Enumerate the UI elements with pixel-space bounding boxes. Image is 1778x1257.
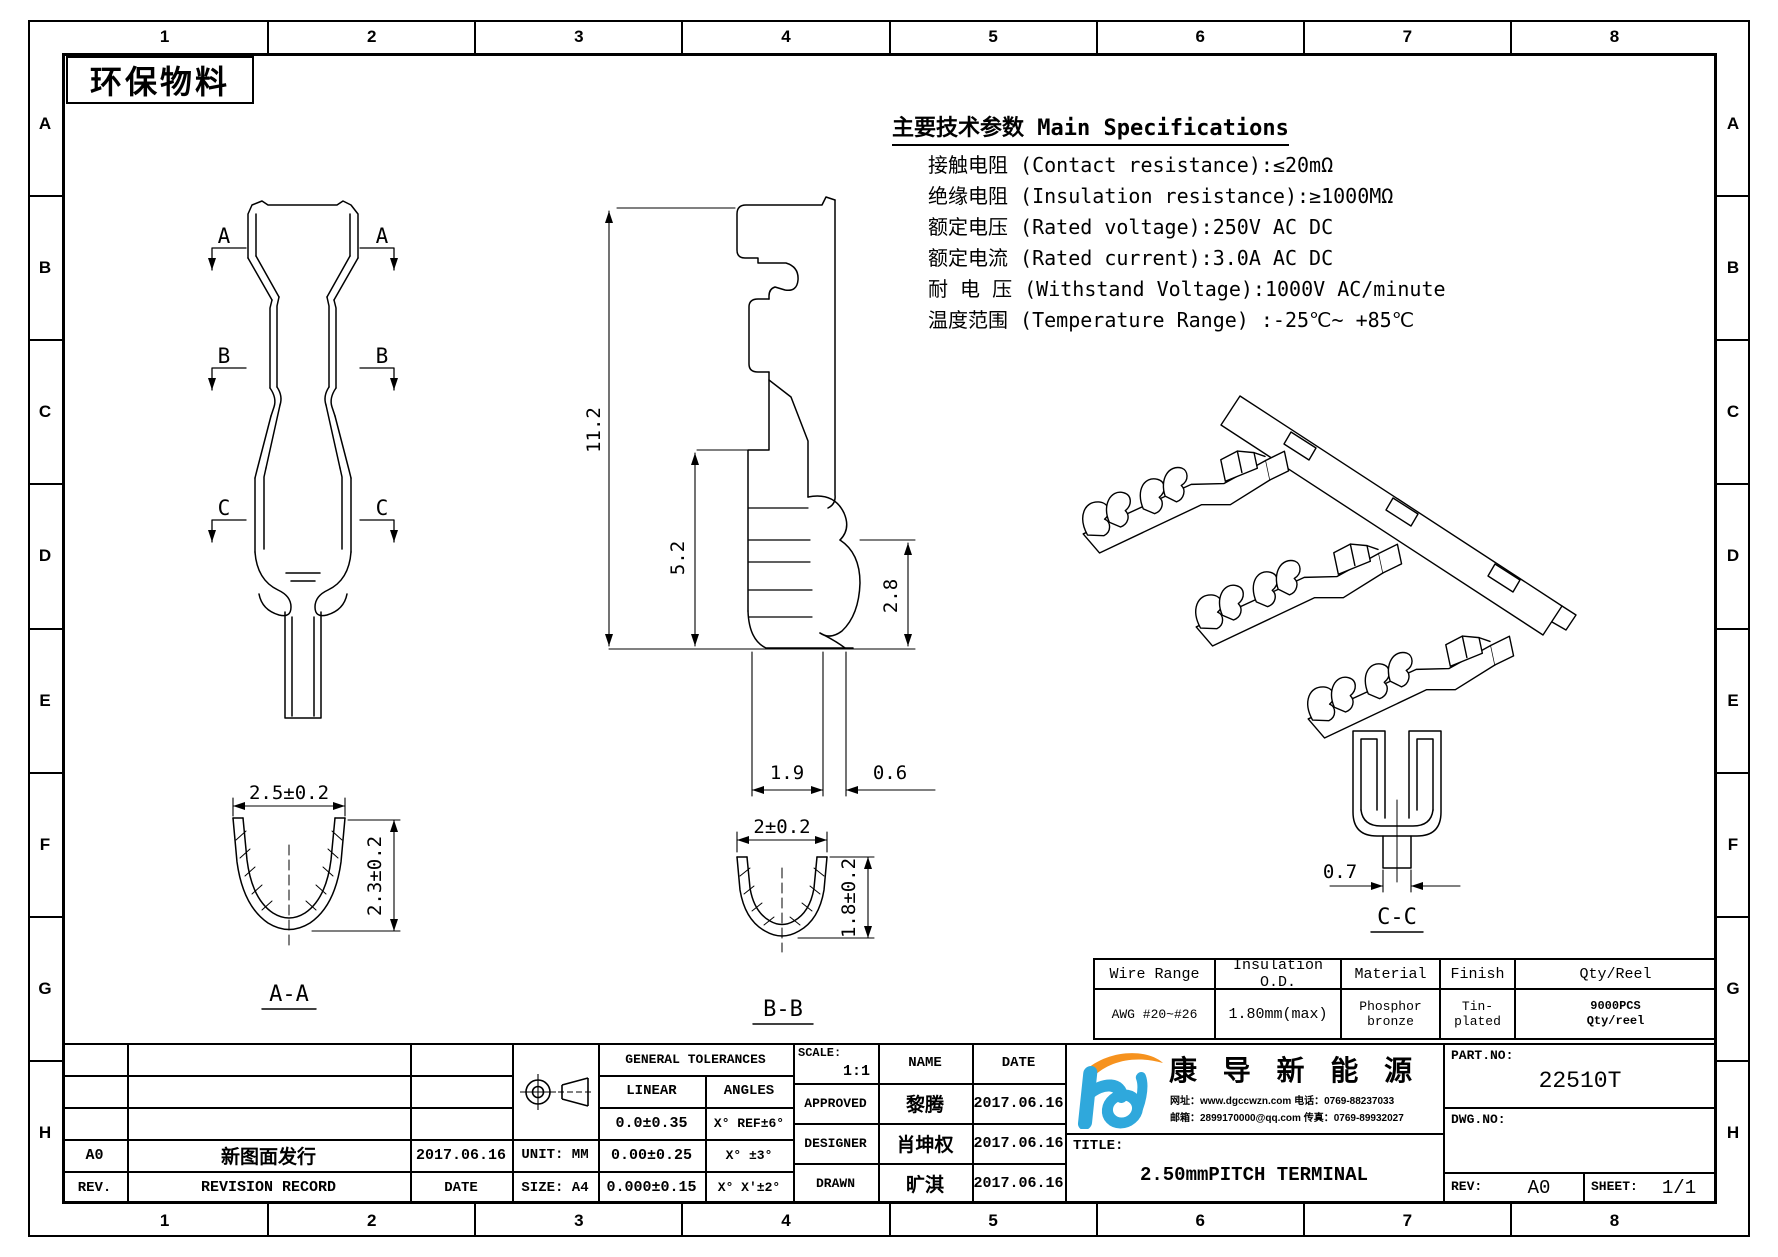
scale-value: 1:1 xyxy=(843,1063,870,1080)
dim-text-side-wing-height: 2.8 xyxy=(880,579,902,613)
part-no-value: 22510T xyxy=(1443,1058,1717,1104)
revision-description: 新图面发行 xyxy=(127,1139,410,1171)
wire-table-header-material: Material xyxy=(1340,960,1439,990)
section-letter-b-left: B xyxy=(218,344,231,368)
wire-table-value-wire-range: AWG #20~#26 xyxy=(1095,990,1214,1038)
isometric-view xyxy=(1073,396,1576,740)
zone-row-label: F xyxy=(28,772,62,916)
zone-column-label: 4 xyxy=(681,1204,888,1237)
zone-row-label: B xyxy=(1716,195,1750,339)
zone-row-label: H xyxy=(28,1060,62,1204)
view-label-cc: C-C xyxy=(1377,905,1417,930)
revision-rev-header: REV. xyxy=(62,1171,127,1204)
revision-date-header: DATE xyxy=(410,1171,512,1204)
dim-side-wing-height: 2.8 xyxy=(860,540,915,646)
section-letter-a-left: A xyxy=(218,224,231,248)
material-line1: Phosphor xyxy=(1359,999,1421,1014)
tolerance-angle-1: X° REF±6° xyxy=(705,1107,793,1139)
company-contact-line2: 邮箱：2899170000@qq.com 传真：0769-89932027 xyxy=(1170,1109,1440,1124)
signoff-date-drawn: 2017.06.16 xyxy=(972,1163,1065,1204)
signoff-role-designer: DESIGNER xyxy=(793,1123,878,1163)
dim-text-aa-height: 2.3±0.2 xyxy=(364,836,386,916)
wire-range-table: Wire Range Insulation O.D. Material Fini… xyxy=(1093,958,1717,1040)
view-label-aa: A-A xyxy=(269,982,309,1007)
dim-text-bb-height: 1.8±0.2 xyxy=(838,858,860,938)
wire-table-header-qty: Qty/Reel xyxy=(1514,960,1715,990)
revision-rev-value: A0 xyxy=(62,1139,127,1171)
zone-row-label: A xyxy=(28,53,62,195)
wire-table-header-wire-range: Wire Range xyxy=(1095,960,1214,990)
signoff-name-drawn: 旷淇 xyxy=(878,1163,972,1204)
iso-terminal-1 xyxy=(1073,442,1297,556)
zone-row-label: B xyxy=(28,195,62,339)
signoff-name-designer: 肖坤权 xyxy=(878,1123,972,1163)
zone-column-label: 7 xyxy=(1303,20,1510,53)
unit-label: UNIT: MM xyxy=(512,1139,598,1171)
side-view: 11.2 5.2 2.8 1.9 0.6 xyxy=(583,197,935,796)
signoff-role-drawn: DRAWN xyxy=(793,1163,878,1204)
dim-text-crimp-width: 1.9 xyxy=(770,762,804,784)
section-marker-c: C C xyxy=(212,496,394,542)
zone-row-label: E xyxy=(1716,628,1750,772)
tolerance-angle-2: X° ±3° xyxy=(705,1139,793,1171)
section-view-bb: 2±0.2 1.8±0.2 B-B xyxy=(737,816,874,1024)
finish-line1: Tin- xyxy=(1454,999,1501,1014)
wire-table-value-finish: Tin-plated xyxy=(1439,990,1514,1038)
signoff-date-designer: 2017.06.16 xyxy=(972,1123,1065,1163)
rev-value: A0 xyxy=(1495,1172,1583,1204)
material-line2: bronze xyxy=(1359,1014,1421,1029)
iso-terminal-2 xyxy=(1186,535,1410,649)
zone-column-label: 3 xyxy=(474,20,681,53)
company-logo-icon xyxy=(1073,1047,1165,1129)
company-block: 康 导 新 能 源 网址：www.dgccwzn.com 电话：0769-882… xyxy=(1065,1043,1443,1133)
sheet-label: SHEET: xyxy=(1591,1179,1638,1194)
section-letter-c-right: C xyxy=(376,496,389,520)
zone-row-label: C xyxy=(28,339,62,483)
dim-text-aa-width: 2.5±0.2 xyxy=(249,782,329,804)
tolerances-angles-header: ANGLES xyxy=(705,1075,793,1107)
dim-text-side-overall: 11.2 xyxy=(583,407,605,453)
iso-terminal-3 xyxy=(1298,627,1522,741)
name-header: NAME xyxy=(878,1043,972,1083)
drawing-title: 2.50mmPITCH TERMINAL xyxy=(1065,1152,1443,1198)
view-label-bb: B-B xyxy=(763,997,803,1022)
front-view: A A B B C C xyxy=(212,201,394,718)
zone-row-label: C xyxy=(1716,339,1750,483)
section-view-aa: 2.5±0.2 2.3±0.2 A-A xyxy=(233,782,400,1009)
qty-line2: Qty/reel xyxy=(1587,1014,1645,1029)
dim-side-overall: 11.2 xyxy=(583,208,915,649)
dim-aa-width: 2.5±0.2 xyxy=(233,782,345,816)
zone-column-label: 8 xyxy=(1510,1204,1717,1237)
zone-row-label: F xyxy=(1716,772,1750,916)
finish-line2: plated xyxy=(1454,1014,1501,1029)
signoff-date-approved: 2017.06.16 xyxy=(972,1083,1065,1123)
zone-band-bottom: 12345678 xyxy=(62,1204,1717,1237)
zone-row-label: H xyxy=(1716,1060,1750,1204)
zone-column-label: 7 xyxy=(1303,1204,1510,1237)
zone-band-top: 12345678 xyxy=(62,20,1717,53)
section-letter-b-right: B xyxy=(376,344,389,368)
tolerance-linear-2: 0.00±0.25 xyxy=(598,1139,705,1171)
zone-column-label: 1 xyxy=(62,1204,267,1237)
dim-aa-height: 2.3±0.2 xyxy=(312,820,400,931)
tolerance-linear-1: 0.0±0.35 xyxy=(598,1107,705,1139)
zone-column-label: 2 xyxy=(267,1204,474,1237)
wire-table-value-material: Phosphorbronze xyxy=(1340,990,1439,1038)
scale-label: SCALE: xyxy=(798,1046,841,1060)
drawing-sheet: 12345678 12345678 ABCDEFGH ABCDEFGH 环保物料… xyxy=(0,0,1778,1257)
section-view-cc: 0.7 C-C xyxy=(1323,731,1460,932)
dim-text-wing-thickness: 0.6 xyxy=(873,762,907,784)
zone-column-label: 8 xyxy=(1510,20,1717,53)
wire-table-header-finish: Finish xyxy=(1439,960,1514,990)
revision-record-header: REVISION RECORD xyxy=(127,1171,410,1204)
tolerance-linear-3: 0.000±0.15 xyxy=(598,1171,705,1204)
qty-line1: 9000PCS xyxy=(1587,999,1645,1014)
section-marker-a: A A xyxy=(212,224,394,270)
drawing-canvas: A A B B C C xyxy=(62,53,1717,1043)
signoff-role-approved: APPROVED xyxy=(793,1083,878,1123)
projection-symbol-icon xyxy=(516,1052,594,1132)
dim-text-side-crimp-height: 5.2 xyxy=(667,541,689,575)
dim-text-bb-width: 2±0.2 xyxy=(753,816,810,838)
zone-column-label: 6 xyxy=(1096,20,1303,53)
sheet-value: 1/1 xyxy=(1641,1172,1717,1204)
zone-column-label: 3 xyxy=(474,1204,681,1237)
dim-side-crimp-height: 5.2 xyxy=(667,450,748,646)
zone-band-left: ABCDEFGH xyxy=(28,53,62,1204)
dim-text-cc-width: 0.7 xyxy=(1323,861,1357,883)
company-contact-line1: 网址：www.dgccwzn.com 电话：0769-88237033 xyxy=(1170,1092,1440,1107)
zone-row-label: D xyxy=(1716,483,1750,627)
wire-table-header-insulation: Insulation O.D. xyxy=(1214,960,1340,990)
section-letter-a-right: A xyxy=(376,224,389,248)
zone-column-label: 5 xyxy=(889,20,1096,53)
zone-band-right: ABCDEFGH xyxy=(1716,53,1750,1204)
zone-row-label: G xyxy=(28,916,62,1060)
wire-table-value-qty: 9000PCSQty/reel xyxy=(1514,990,1715,1038)
date-header: DATE xyxy=(972,1043,1065,1083)
tolerances-linear-header: LINEAR xyxy=(598,1075,705,1107)
company-name: 康 导 新 能 源 xyxy=(1169,1049,1437,1089)
zone-row-label: G xyxy=(1716,916,1750,1060)
tolerances-title: GENERAL TOLERANCES xyxy=(598,1043,793,1075)
dwg-no-label: DWG.NO: xyxy=(1451,1112,1506,1127)
signoff-name-approved: 黎腾 xyxy=(878,1083,972,1123)
section-letter-c-left: C xyxy=(218,496,231,520)
dim-bb-width: 2±0.2 xyxy=(737,816,827,852)
zone-column-label: 2 xyxy=(267,20,474,53)
dim-cc-width: 0.7 xyxy=(1323,861,1460,892)
zone-column-label: 6 xyxy=(1096,1204,1303,1237)
zone-row-label: E xyxy=(28,628,62,772)
zone-column-label: 5 xyxy=(889,1204,1096,1237)
tolerance-angle-3: X° X'±2° xyxy=(705,1171,793,1204)
scale-cell: SCALE: 1:1 xyxy=(793,1043,878,1083)
dim-side-bottom: 1.9 0.6 xyxy=(752,652,935,796)
revision-date-value: 2017.06.16 xyxy=(410,1139,512,1171)
wire-table-value-insulation: 1.80mm(max) xyxy=(1214,990,1340,1038)
zone-column-label: 1 xyxy=(62,20,267,53)
zone-row-label: D xyxy=(28,483,62,627)
rev-label: REV: xyxy=(1451,1179,1482,1194)
size-label: SIZE: A4 xyxy=(512,1171,598,1204)
zone-row-label: A xyxy=(1716,53,1750,195)
zone-column-label: 4 xyxy=(681,20,888,53)
section-marker-b: B B xyxy=(212,344,394,390)
dim-bb-height: 1.8±0.2 xyxy=(798,857,874,938)
